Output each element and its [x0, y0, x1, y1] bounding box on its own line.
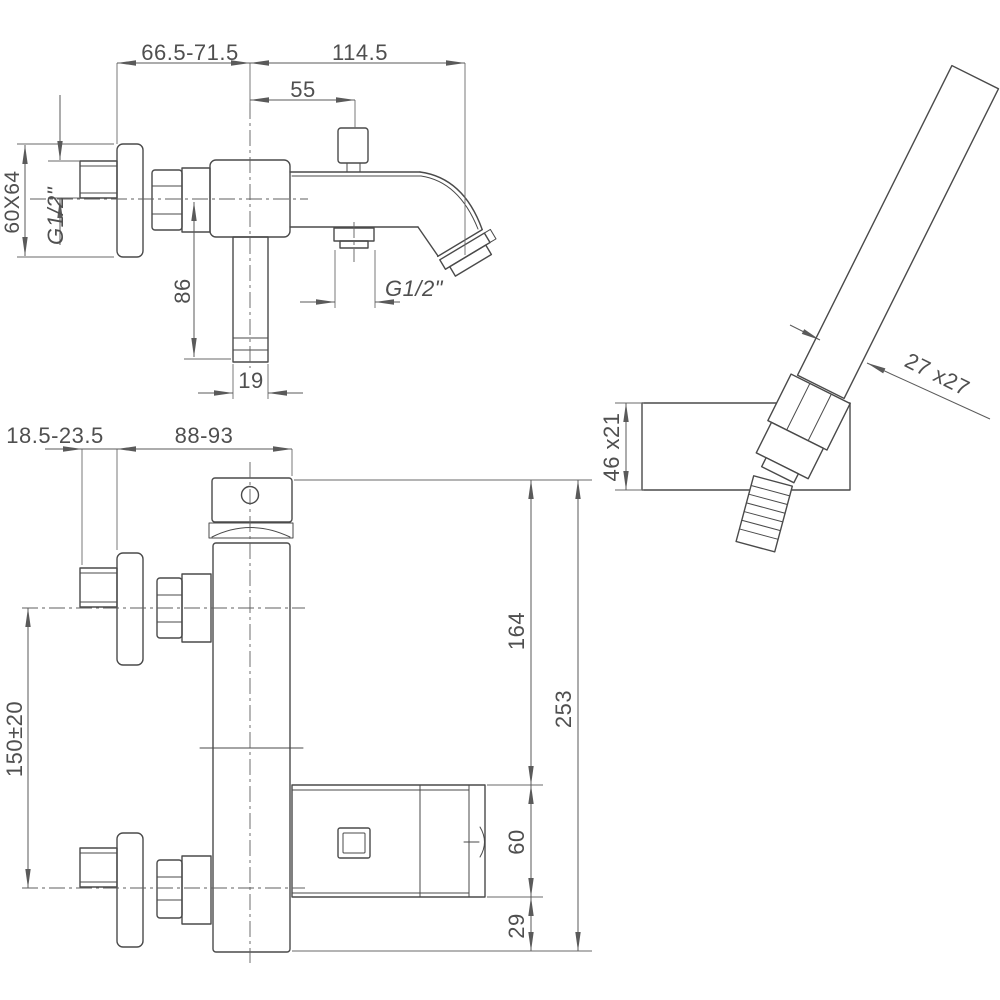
dim-spout-reach: 114.5 — [332, 40, 388, 65]
dim-wall-to-center: 66.5-71.5 — [141, 40, 238, 65]
dim-center-to-diverter: 55 — [290, 77, 315, 102]
side-inlet-fitting — [80, 161, 117, 198]
dim-outlet-thread: G1/2" — [385, 276, 444, 301]
dim-spout-to-bottom: 29 — [504, 913, 529, 938]
dim-inlet-spacing: 150±20 — [2, 701, 27, 777]
front-bottom-hex-nut — [157, 860, 182, 918]
front-spout — [292, 785, 485, 897]
dim-drop-length: 86 — [170, 278, 195, 303]
side-view — [30, 103, 502, 368]
front-view-dimensions: 18.5-23.5 88-93 150±20 164 60 29 253 — [2, 423, 592, 951]
side-connector — [182, 168, 210, 232]
side-hex-nut — [152, 170, 182, 230]
technical-drawing: 66.5-71.5 114.5 55 60X64 G1/2" 86 19 G1/… — [0, 0, 1000, 1000]
front-bottom-flange — [117, 833, 143, 947]
drawing-page: 66.5-71.5 114.5 55 60X64 G1/2" 86 19 G1/… — [0, 0, 1000, 1000]
front-top-flange — [117, 553, 143, 665]
handshower-view: 27 x27 46 x21 — [599, 66, 998, 552]
side-diverter-knob — [338, 128, 368, 163]
dim-flange-size: 60X64 — [1, 170, 24, 233]
dim-overall-height: 253 — [551, 690, 576, 728]
front-view — [22, 462, 485, 963]
dim-handle-to-spout: 164 — [504, 612, 529, 650]
front-handle — [212, 478, 292, 522]
side-spout-bend-outer — [420, 172, 482, 229]
handshower-hose-thread — [736, 476, 792, 552]
dim-drop-width: 19 — [238, 368, 263, 393]
side-spout-outlet — [438, 226, 502, 279]
front-top-fitting — [80, 568, 117, 607]
dim-inlet-thread: G1/2" — [43, 186, 68, 245]
side-flange — [117, 144, 143, 257]
side-drop-tube — [233, 237, 268, 362]
front-aerator — [480, 827, 485, 857]
front-bottom-fitting — [80, 848, 117, 887]
front-bottom-connector — [182, 856, 211, 924]
dim-holder-size: 46 x21 — [599, 412, 624, 481]
dim-wall-to-body: 88-93 — [175, 423, 234, 448]
handshower-wand — [798, 66, 999, 399]
dim-wand-section: 27 x27 — [901, 348, 974, 401]
dim-fitting-depth: 18.5-23.5 — [6, 423, 103, 448]
dim-spout-height: 60 — [504, 829, 529, 854]
front-cartridge-band — [209, 523, 293, 538]
